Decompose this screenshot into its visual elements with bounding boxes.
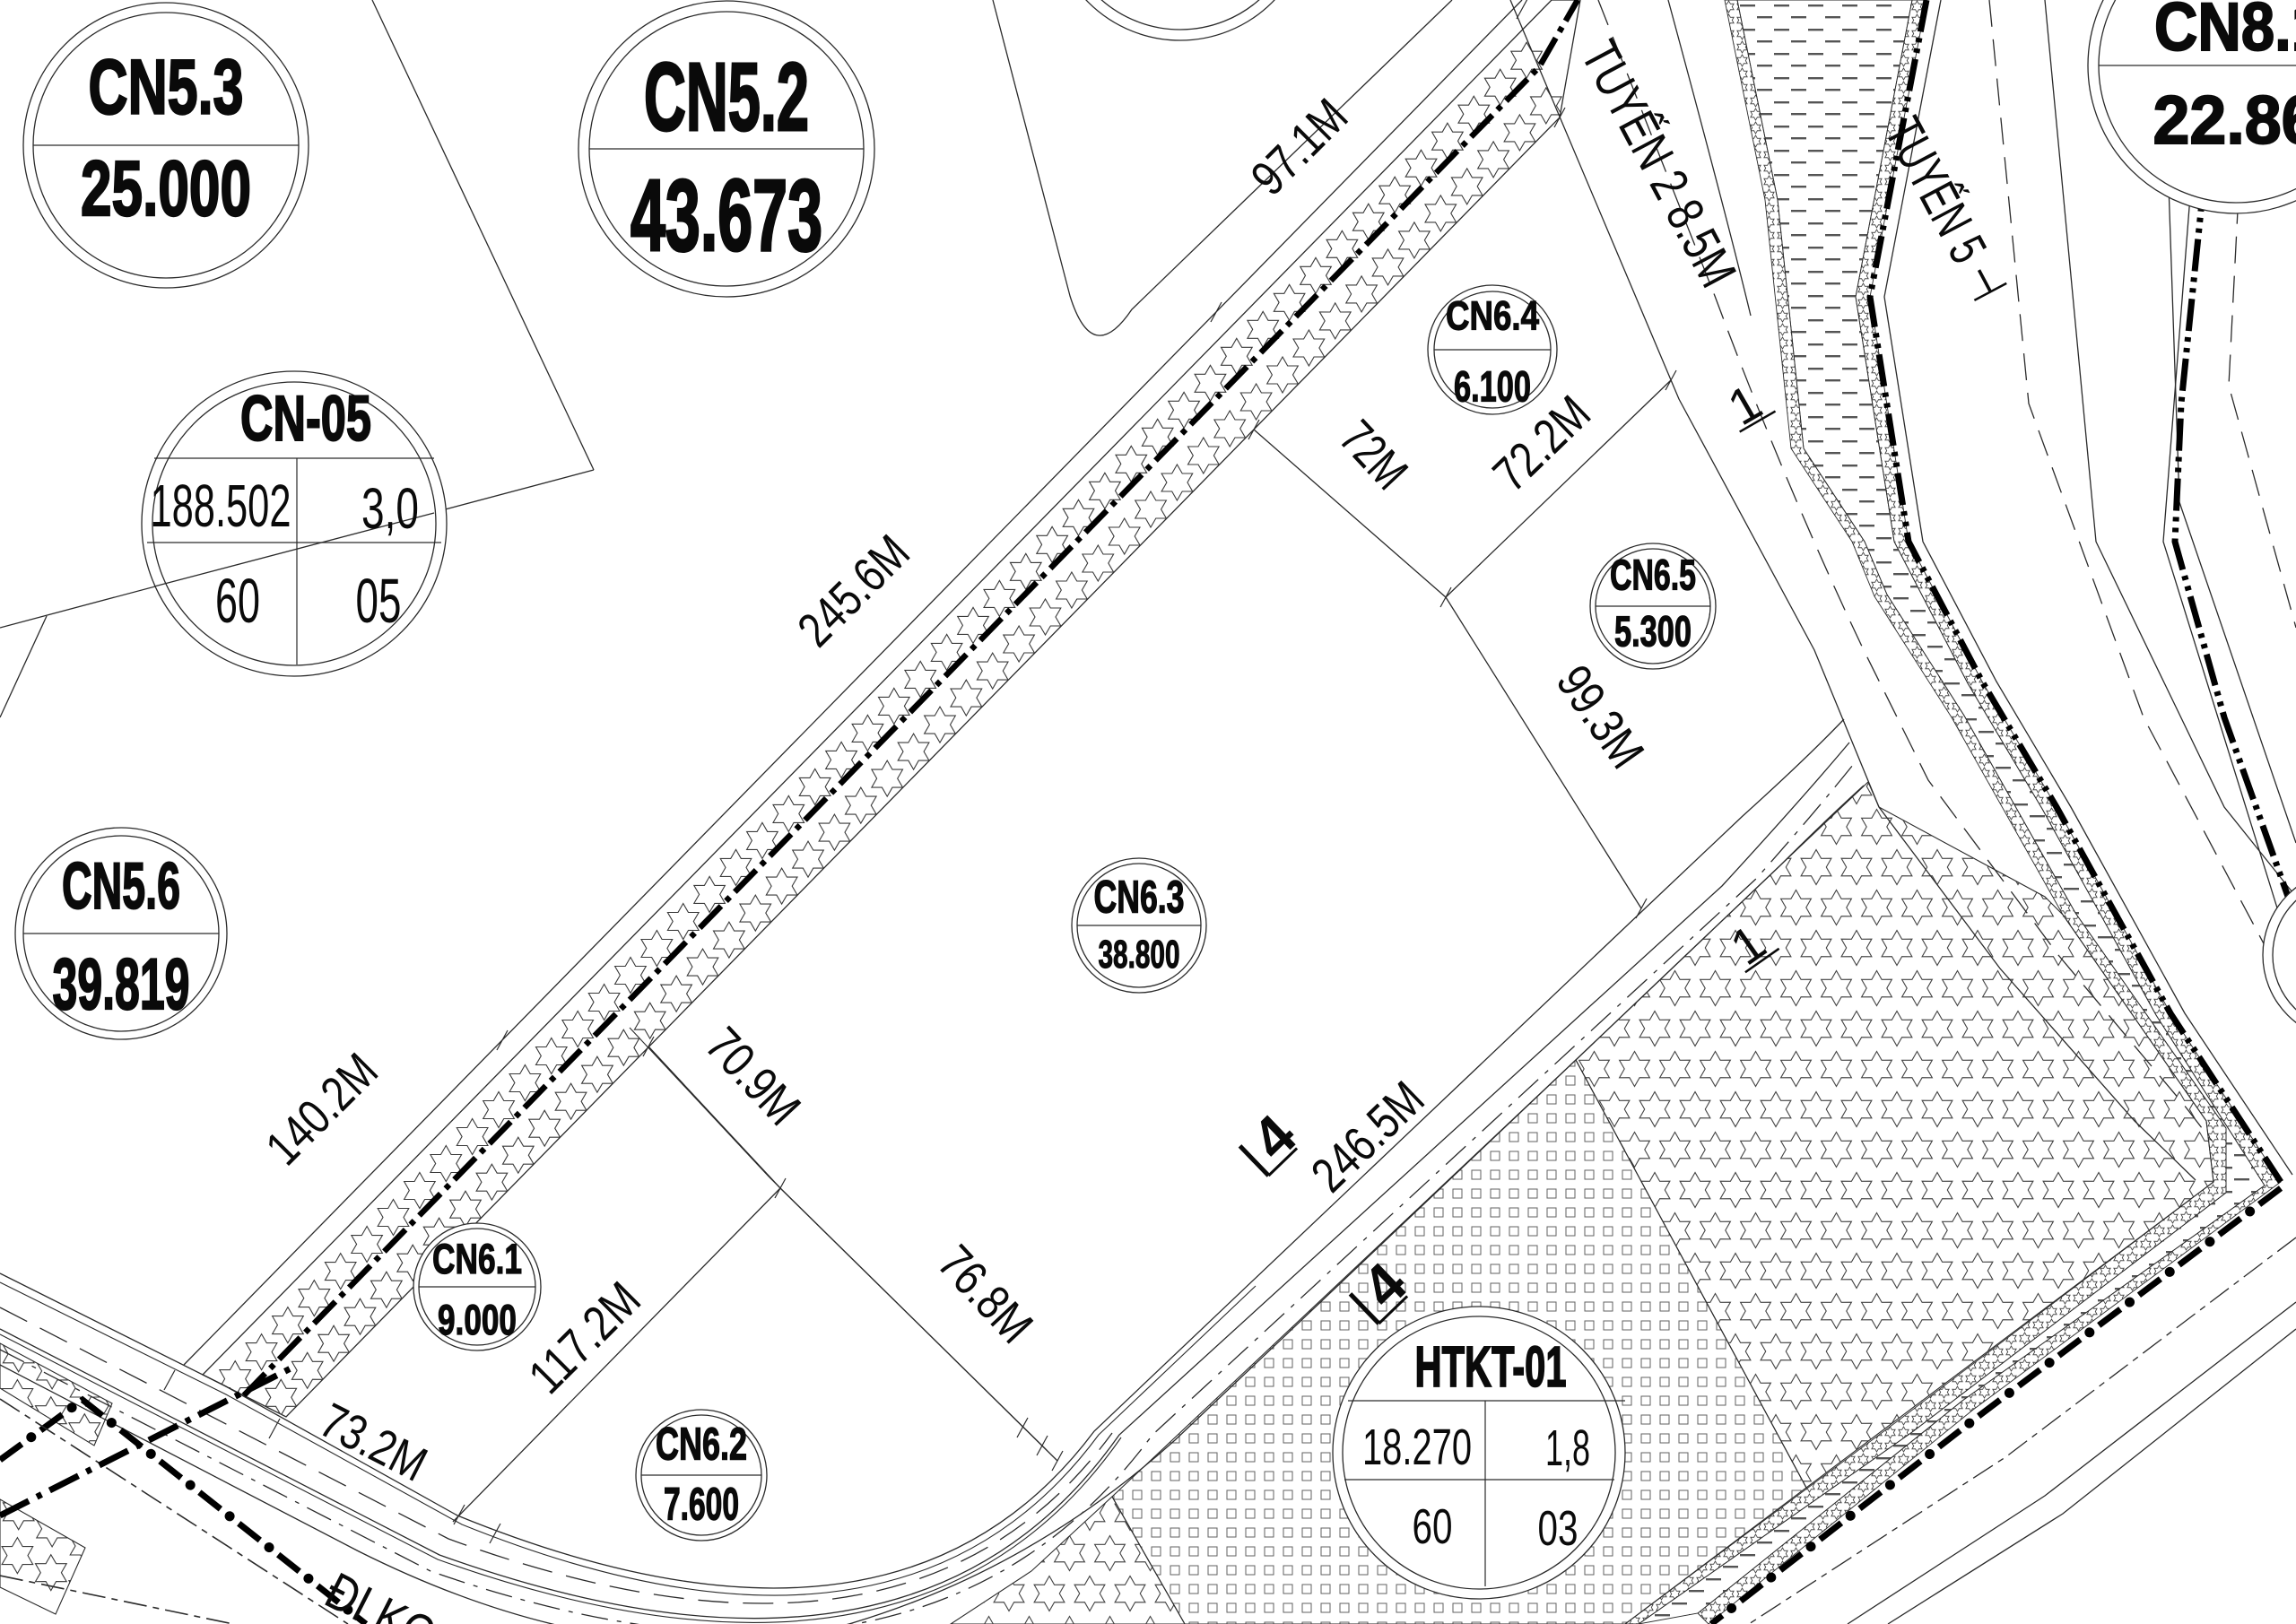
svg-text:7.600: 7.600: [664, 1479, 739, 1530]
svg-text:6.100: 6.100: [1454, 364, 1531, 412]
svg-text:CN6.5: CN6.5: [1610, 552, 1696, 600]
svg-text:CN5.6: CN5.6: [62, 850, 180, 923]
svg-text:5.300: 5.300: [1614, 609, 1692, 656]
svg-text:CN6.3: CN6.3: [1094, 872, 1185, 923]
svg-text:39.819: 39.819: [53, 944, 190, 1025]
svg-text:CN5.2: CN5.2: [644, 42, 809, 151]
svg-text:3,0: 3,0: [361, 476, 419, 541]
svg-text:25.000: 25.000: [81, 145, 251, 232]
svg-text:CN6.2: CN6.2: [656, 1419, 747, 1470]
svg-text:HTKT-01: HTKT-01: [1415, 1334, 1567, 1399]
svg-text:03: 03: [1538, 1500, 1578, 1556]
svg-text:1,8: 1,8: [1545, 1420, 1590, 1477]
svg-text:CN5.3: CN5.3: [89, 45, 244, 131]
svg-text:18.270: 18.270: [1362, 1419, 1472, 1476]
svg-text:60: 60: [1413, 1498, 1453, 1554]
svg-text:CN6.4: CN6.4: [1446, 293, 1539, 339]
svg-text:60: 60: [215, 566, 260, 636]
svg-text:CN-05: CN-05: [240, 384, 371, 455]
svg-text:05: 05: [356, 566, 402, 636]
svg-text:43.673: 43.673: [631, 159, 822, 272]
svg-text:CN8.1: CN8.1: [2154, 0, 2296, 65]
svg-text:188.502: 188.502: [151, 473, 291, 540]
svg-text:22.860: 22.860: [2153, 83, 2296, 159]
svg-text:38.800: 38.800: [1099, 933, 1180, 977]
svg-text:CN6.1: CN6.1: [432, 1235, 522, 1282]
svg-text:9.000: 9.000: [438, 1296, 517, 1343]
